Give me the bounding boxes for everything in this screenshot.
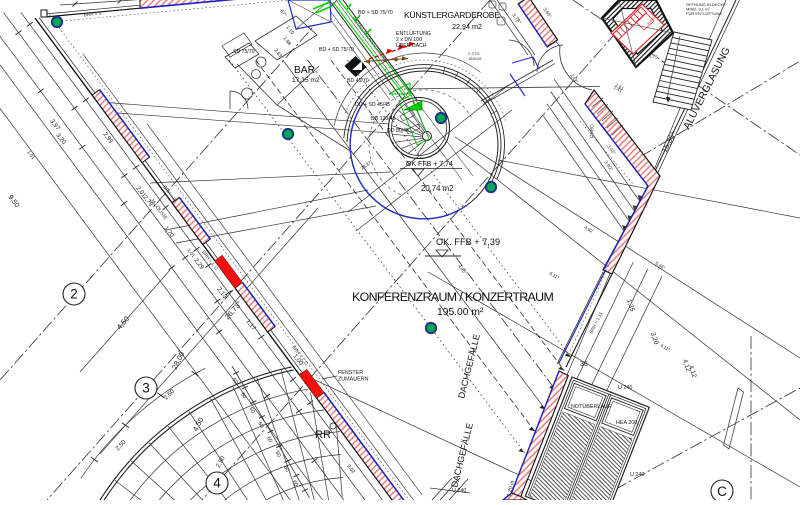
svg-text:BD + SD 75/70: BD + SD 75/70 — [358, 10, 393, 16]
svg-text:FÜR ENTLÜFTUNG: FÜR ENTLÜFTUNG — [686, 11, 722, 16]
svg-text:22,94 m2: 22,94 m2 — [452, 22, 482, 31]
svg-text:C: C — [717, 484, 727, 499]
svg-text:HEA 200: HEA 200 — [616, 420, 637, 426]
svg-text:NOTÜBERLAUF: NOTÜBERLAUF — [571, 403, 612, 410]
svg-text:U 240: U 240 — [630, 472, 644, 478]
svg-text:195.00 m²: 195.00 m² — [437, 307, 484, 318]
svg-text:FENSTER: FENSTER — [338, 370, 363, 376]
svg-text:OK FFB + 7,74: OK FFB + 7,74 — [406, 161, 453, 168]
svg-text:4: 4 — [213, 476, 221, 491]
svg-text:2: 2 — [70, 287, 78, 302]
svg-text:SD 75/70: SD 75/70 — [233, 49, 255, 55]
svg-text:DD 80/45: DD 80/45 — [387, 128, 409, 134]
svg-text:BD + SD 75/70: BD + SD 75/70 — [319, 47, 354, 53]
svg-text:20,74 m2: 20,74 m2 — [421, 184, 454, 193]
svg-text:ÜBER DACH: ÜBER DACH — [396, 42, 427, 49]
svg-text:KONFERENZRAUM / KONZERTRAUM: KONFERENZRAUM / KONZERTRAUM — [352, 290, 553, 304]
svg-text:ENTLÜFTUNG: ENTLÜFTUNG — [396, 30, 431, 37]
svg-text:3: 3 — [142, 381, 150, 396]
svg-text:DD + SD 45/45: DD + SD 45/45 — [355, 102, 390, 108]
svg-text:RR: RR — [315, 429, 331, 441]
svg-text:BAR: BAR — [294, 65, 315, 76]
svg-text:KÜNSTLERGARDEROBE: KÜNSTLERGARDEROBE — [404, 10, 500, 20]
svg-text:18/5/28: 18/5/28 — [468, 56, 482, 61]
svg-text:DARD.: DARD. — [589, 123, 596, 138]
svg-text:BD 120/45: BD 120/45 — [371, 116, 396, 122]
svg-text:ZUMAUERN: ZUMAUERN — [338, 377, 369, 383]
svg-text:U 240: U 240 — [618, 385, 632, 391]
svg-text:OK. FFB + 7,39: OK. FFB + 7,39 — [436, 237, 500, 247]
